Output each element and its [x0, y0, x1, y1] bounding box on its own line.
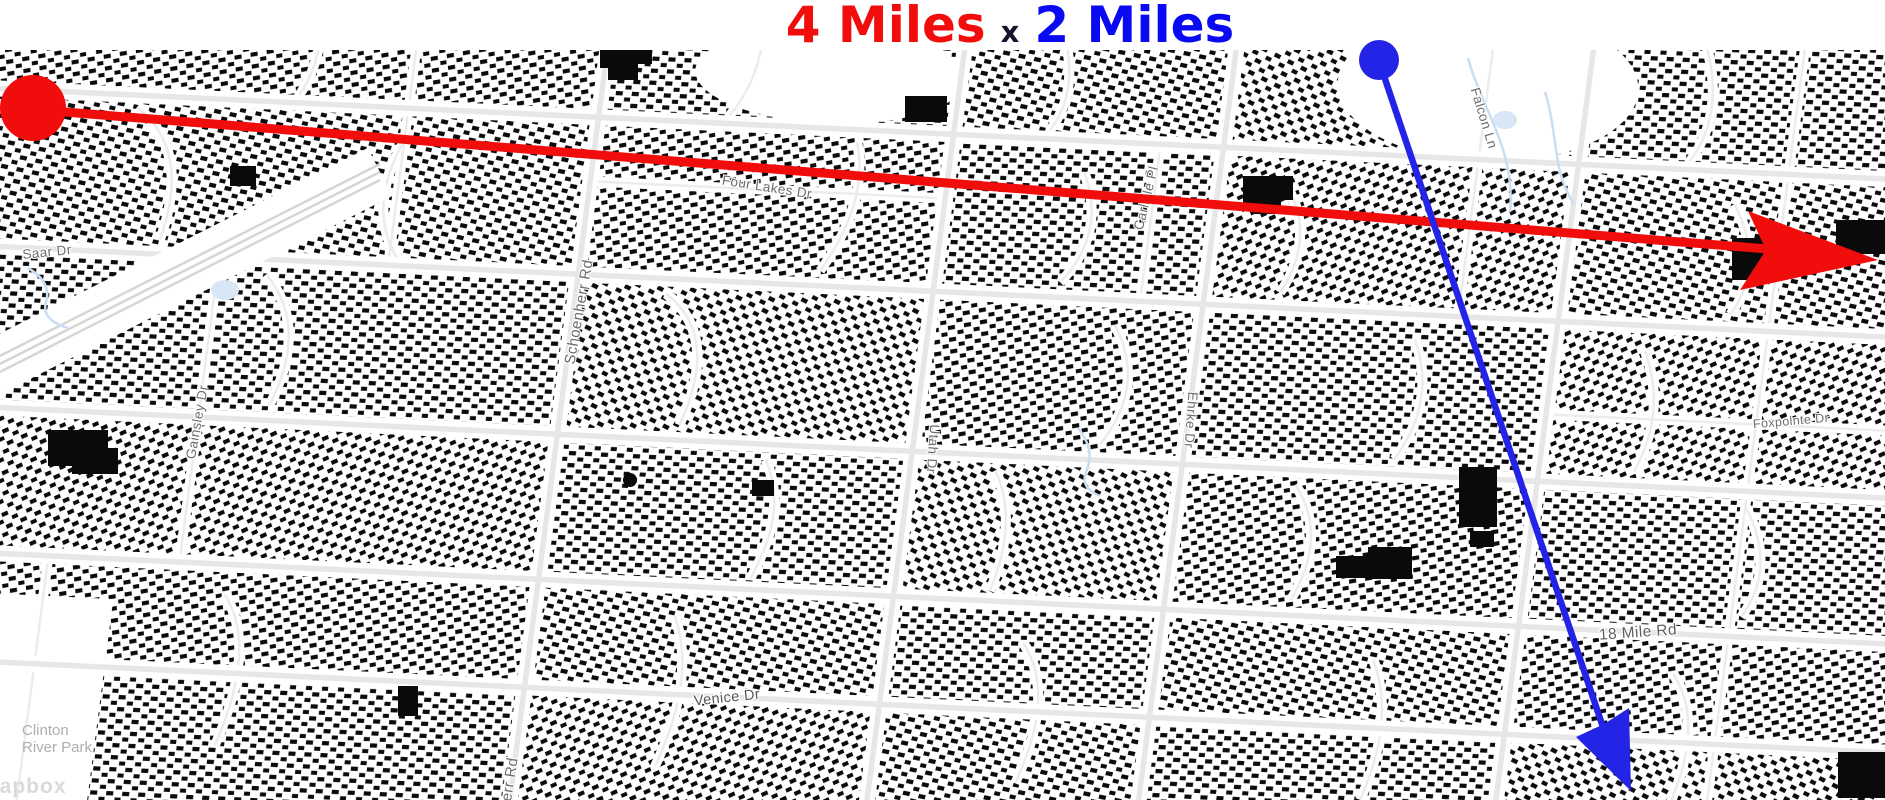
width-arrow-shaft: [52, 111, 1768, 249]
measurement-overlay: [0, 0, 1885, 800]
annotated-map-screenshot: Saar Dr Four Lakes Dr Schoenherr Rd Gain…: [0, 0, 1885, 800]
width-arrow: [0, 75, 1878, 290]
title-separator: x: [1001, 15, 1020, 49]
title-width-label: 4 Miles: [786, 0, 986, 54]
dimensions-title: 4 Miles x 2 Miles: [786, 0, 1235, 54]
height-arrow-shaft: [1384, 76, 1610, 748]
title-height-label: 2 Miles: [1034, 0, 1234, 54]
height-arrow-origin-dot: [1359, 40, 1399, 80]
height-arrow: [1359, 40, 1631, 791]
